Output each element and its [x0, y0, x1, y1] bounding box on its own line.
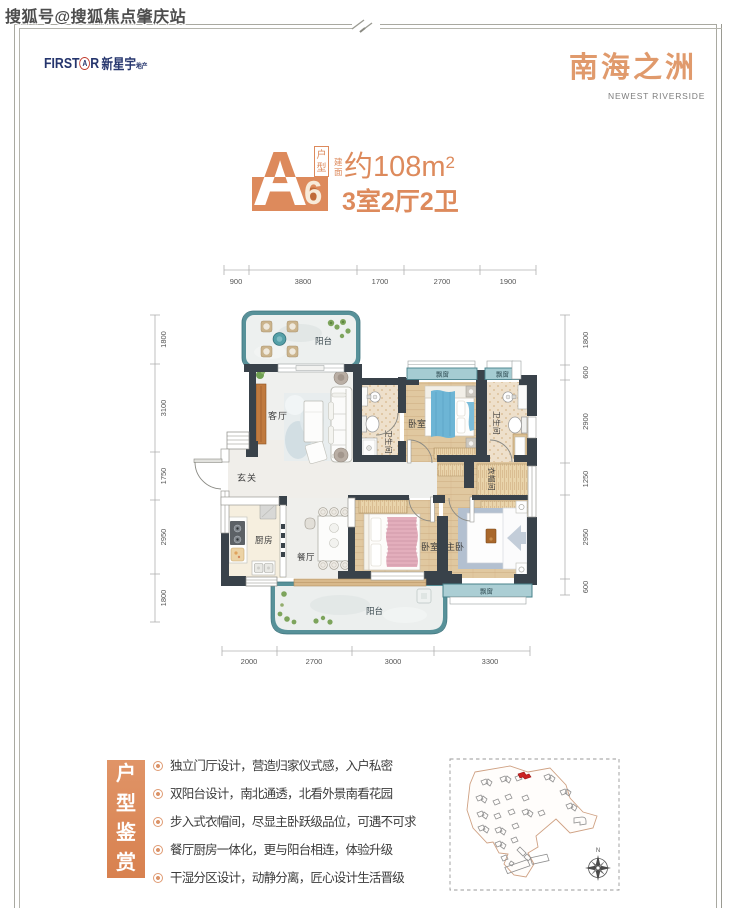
svg-text:3000: 3000 [385, 657, 402, 666]
svg-text:2700: 2700 [306, 657, 323, 666]
svg-text:3100: 3100 [159, 400, 168, 417]
svg-text:飘窗: 飘窗 [480, 587, 493, 596]
svg-text:1900: 1900 [500, 277, 517, 286]
svg-text:2900: 2900 [581, 413, 590, 430]
svg-text:卧室: 卧室 [408, 418, 426, 429]
svg-text:型: 型 [317, 161, 327, 174]
svg-text:厨房: 厨房 [255, 535, 273, 545]
svg-text:卧室: 卧室 [421, 541, 439, 552]
svg-text:3室2厅2卫: 3室2厅2卫 [342, 187, 459, 216]
svg-text:约108m2: 约108m2 [344, 150, 455, 183]
svg-text:1750: 1750 [159, 468, 168, 485]
svg-text:N: N [596, 848, 600, 854]
svg-text:600: 600 [581, 366, 590, 379]
svg-text:卫生间: 卫生间 [492, 411, 502, 435]
svg-text:6: 6 [304, 174, 322, 211]
svg-text:阳台: 阳台 [366, 606, 383, 616]
svg-text:600: 600 [581, 581, 590, 594]
svg-text:2950: 2950 [581, 529, 590, 546]
svg-text:900: 900 [230, 277, 243, 286]
svg-text:主卧: 主卧 [446, 541, 464, 552]
svg-text:1250: 1250 [581, 471, 590, 488]
svg-text:2700: 2700 [434, 277, 451, 286]
svg-text:1800: 1800 [581, 332, 590, 349]
svg-text:1800: 1800 [159, 590, 168, 607]
svg-text:飘窗: 飘窗 [496, 370, 509, 379]
svg-text:3300: 3300 [482, 657, 499, 666]
svg-text:面: 面 [334, 167, 343, 177]
svg-text:建: 建 [334, 157, 343, 167]
svg-text:客厅: 客厅 [268, 410, 288, 421]
svg-text:餐厅: 餐厅 [297, 552, 315, 562]
svg-text:卫生间: 卫生间 [384, 430, 394, 454]
svg-text:2950: 2950 [159, 529, 168, 546]
svg-text:1800: 1800 [159, 331, 168, 348]
svg-text:户: 户 [317, 148, 327, 161]
svg-text:飘窗: 飘窗 [436, 370, 449, 379]
svg-text:衣帽间: 衣帽间 [487, 467, 497, 491]
svg-text:阳台: 阳台 [315, 336, 332, 346]
svg-text:2000: 2000 [241, 657, 258, 666]
svg-text:1700: 1700 [372, 277, 389, 286]
svg-text:3800: 3800 [295, 277, 312, 286]
svg-text:玄关: 玄关 [237, 472, 257, 483]
